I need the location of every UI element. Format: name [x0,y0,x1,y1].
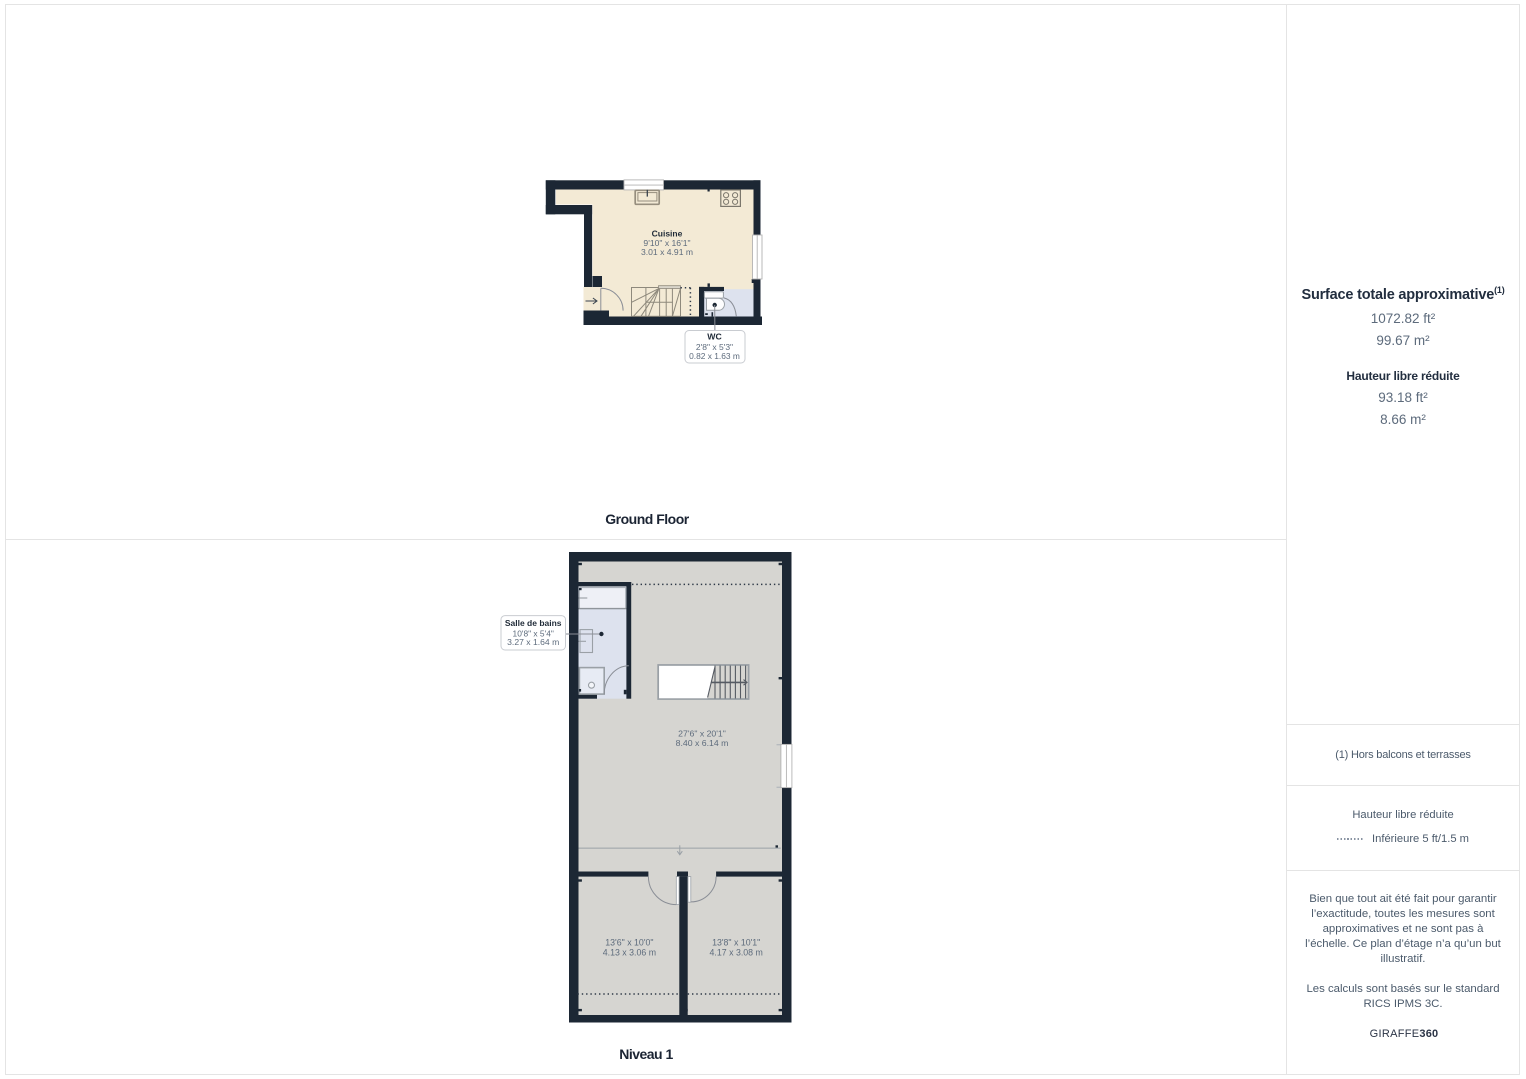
svg-text:0.82 x 1.63 m: 0.82 x 1.63 m [689,351,740,361]
svg-text:8.40 x 6.14 m: 8.40 x 6.14 m [676,738,729,748]
svg-text:Cuisine: Cuisine [652,228,683,238]
svg-text:WC: WC [707,332,722,342]
svg-text:3.01 x 4.91 m: 3.01 x 4.91 m [641,247,693,257]
svg-text:Salle de bains: Salle de bains [505,618,562,628]
svg-text:13'8" x 10'1": 13'8" x 10'1" [712,938,760,948]
svg-text:4.17 x 3.08 m: 4.17 x 3.08 m [710,947,763,957]
svg-text:3.27 x 1.64 m: 3.27 x 1.64 m [507,637,559,647]
svg-text:4.13 x 3.06 m: 4.13 x 3.06 m [603,947,656,957]
svg-text:13'6" x 10'0": 13'6" x 10'0" [605,938,653,948]
svg-text:27'6" x 20'1": 27'6" x 20'1" [678,728,726,738]
